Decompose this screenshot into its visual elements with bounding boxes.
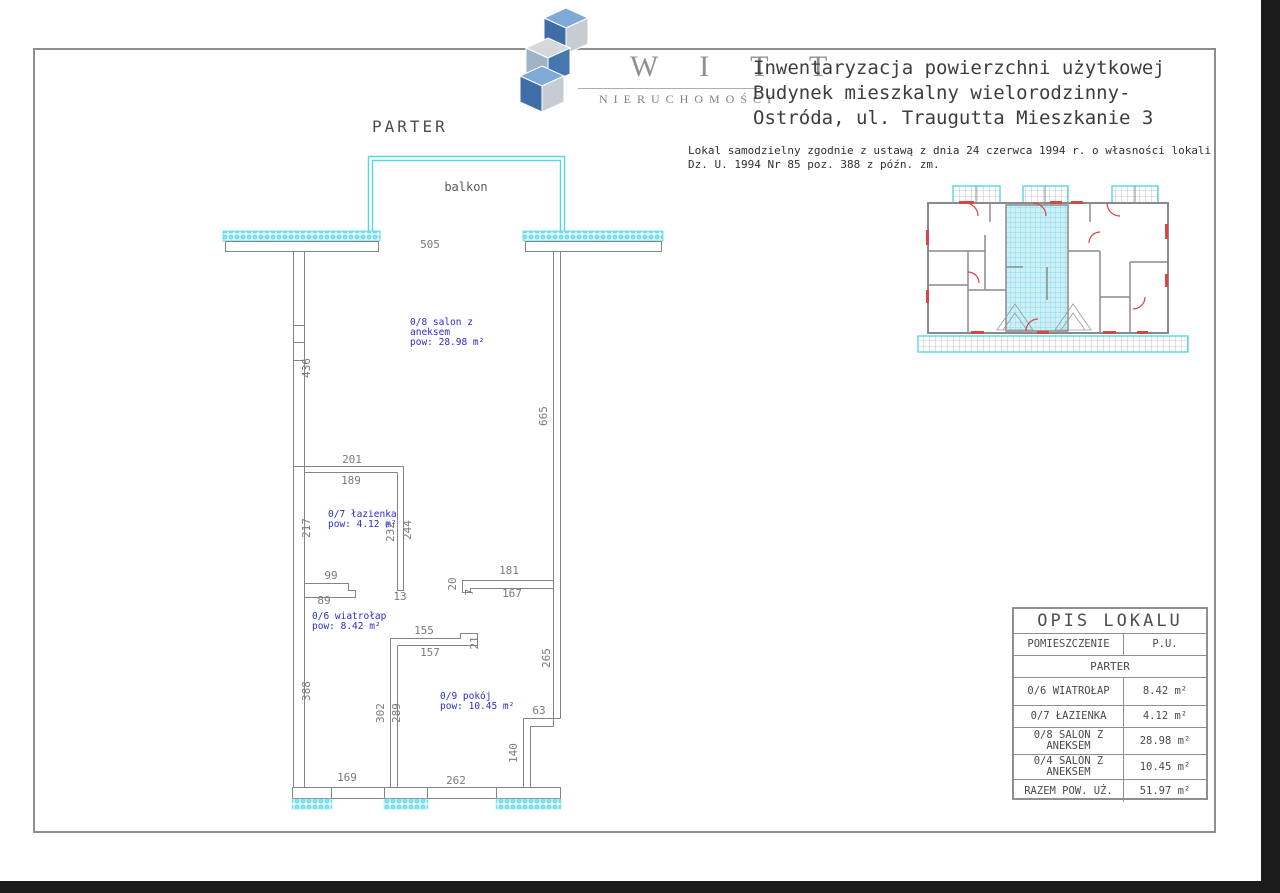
dimension-label: 201 [342,453,362,466]
room-name: 0/8 SALON Z ANEKSEM [1014,728,1124,754]
dimension-label: 665 [537,406,550,426]
table-row: 0/4 SALON Z ANEKSEM 10.45 m² [1014,754,1206,779]
title-line-1: Inwentaryzacja powierzchni użytkowej [753,56,1165,81]
column-header-area: P.U. [1124,634,1206,655]
overview-highlighted-unit [1006,205,1068,331]
dimension-label: 13 [393,590,406,603]
dimension-label: 63 [532,704,545,717]
dimension-label: 20 [446,577,459,590]
room-name: 0/7 ŁAZIENKA [1014,706,1124,727]
dimension-label: 181 [499,564,519,577]
legal-note: Lokal samodzielny zgodnie z ustawą z dni… [688,144,1211,171]
title-line-2: Budynek mieszkalny wielorodzinny- [753,81,1165,106]
table-row: 0/6 WIATROŁAP 8.42 m² [1014,677,1206,705]
table-header-row: POMIESZCZENIE P.U. [1014,633,1206,655]
room-area: 4.12 m² [1124,706,1206,727]
dimension-label: 505 [420,238,440,251]
scan-black-bar-right [1261,0,1280,893]
overview-balconies [953,186,1158,203]
room-labels: 0/8 salon zaneksempow: 28.98 m²0/7 łazie… [312,317,514,712]
room-area: 8.42 m² [1124,678,1206,705]
document-title: Inwentaryzacja powierzchni użytkowej Bud… [753,56,1165,131]
legal-line-1: Lokal samodzielny zgodnie z ustawą z dni… [688,144,1211,158]
room-name: RAZEM POW. UŻ. [1014,780,1124,802]
balcony-outline [369,157,565,239]
room-area: 10.45 m² [1124,755,1206,779]
scan-black-bar-bottom [0,881,1280,893]
room-area: 51.97 m² [1124,780,1206,802]
building-overview-plan [905,172,1205,372]
room-label: pow: 28.98 m² [410,337,484,348]
table-row: 0/7 ŁAZIENKA 4.12 m² [1014,705,1206,727]
dimension-label: 217 [300,518,313,538]
dimension-label: 189 [341,474,361,487]
dimension-label: 167 [502,587,522,600]
dimension-label: 157 [420,646,440,659]
table-row: RAZEM POW. UŻ. 51.97 m² [1014,779,1206,802]
dimension-label: 99 [324,569,337,582]
dimension-label: 436 [300,358,313,378]
scanned-floor-plan-page: { "colors": { "accent_cyan":"#55d7e8", "… [0,0,1280,893]
room-label: pow: 10.45 m² [440,701,514,712]
dimension-label: 169 [337,771,357,784]
legal-line-2: Dz. U. 1994 Nr 85 poz. 388 z późn. zm. [688,158,1211,172]
dimension-label: 302 [374,703,387,723]
dimension-label: 7 [463,589,476,596]
dimension-label: 289 [390,703,403,723]
dimension-label: 265 [540,648,553,668]
dimension-label: 140 [507,743,520,763]
logo-divider-rule [578,88,760,89]
floor-title: PARTER [372,117,448,136]
dimension-label: 21 [468,636,481,649]
dimension-label: 388 [300,681,313,701]
dimension-label: 155 [414,624,434,637]
dimension-label: 244 [401,520,414,540]
overview-walkway [918,336,1188,352]
dimension-label: 262 [446,774,466,787]
top-hatch-strips [223,231,663,252]
column-header-room: POMIESZCZENIE [1014,634,1124,655]
room-label: pow: 4.12 m² [328,519,397,530]
room-label: pow: 8.42 m² [312,621,381,632]
title-line-3: Ostróda, ul. Traugutta Mieszkanie 3 [753,106,1165,131]
opis-lokalu-table: OPIS LOKALU POMIESZCZENIE P.U. PARTER 0/… [1012,607,1208,800]
table-title: OPIS LOKALU [1014,609,1206,633]
room-area: 28.98 m² [1124,728,1206,754]
room-name: 0/4 SALON Z ANEKSEM [1014,755,1124,779]
room-name: 0/6 WIATROŁAP [1014,678,1124,705]
main-floor-plan-drawing: balkon 505436665201189217232244998913207… [200,140,680,830]
dimension-label: 89 [317,594,330,607]
logo-subbrand-text: NIERUCHOMOŚCI [599,92,777,107]
table-section-row: PARTER [1014,655,1206,677]
table-row: 0/8 SALON Z ANEKSEM 28.98 m² [1014,727,1206,754]
balcony-label: balkon [444,180,487,194]
